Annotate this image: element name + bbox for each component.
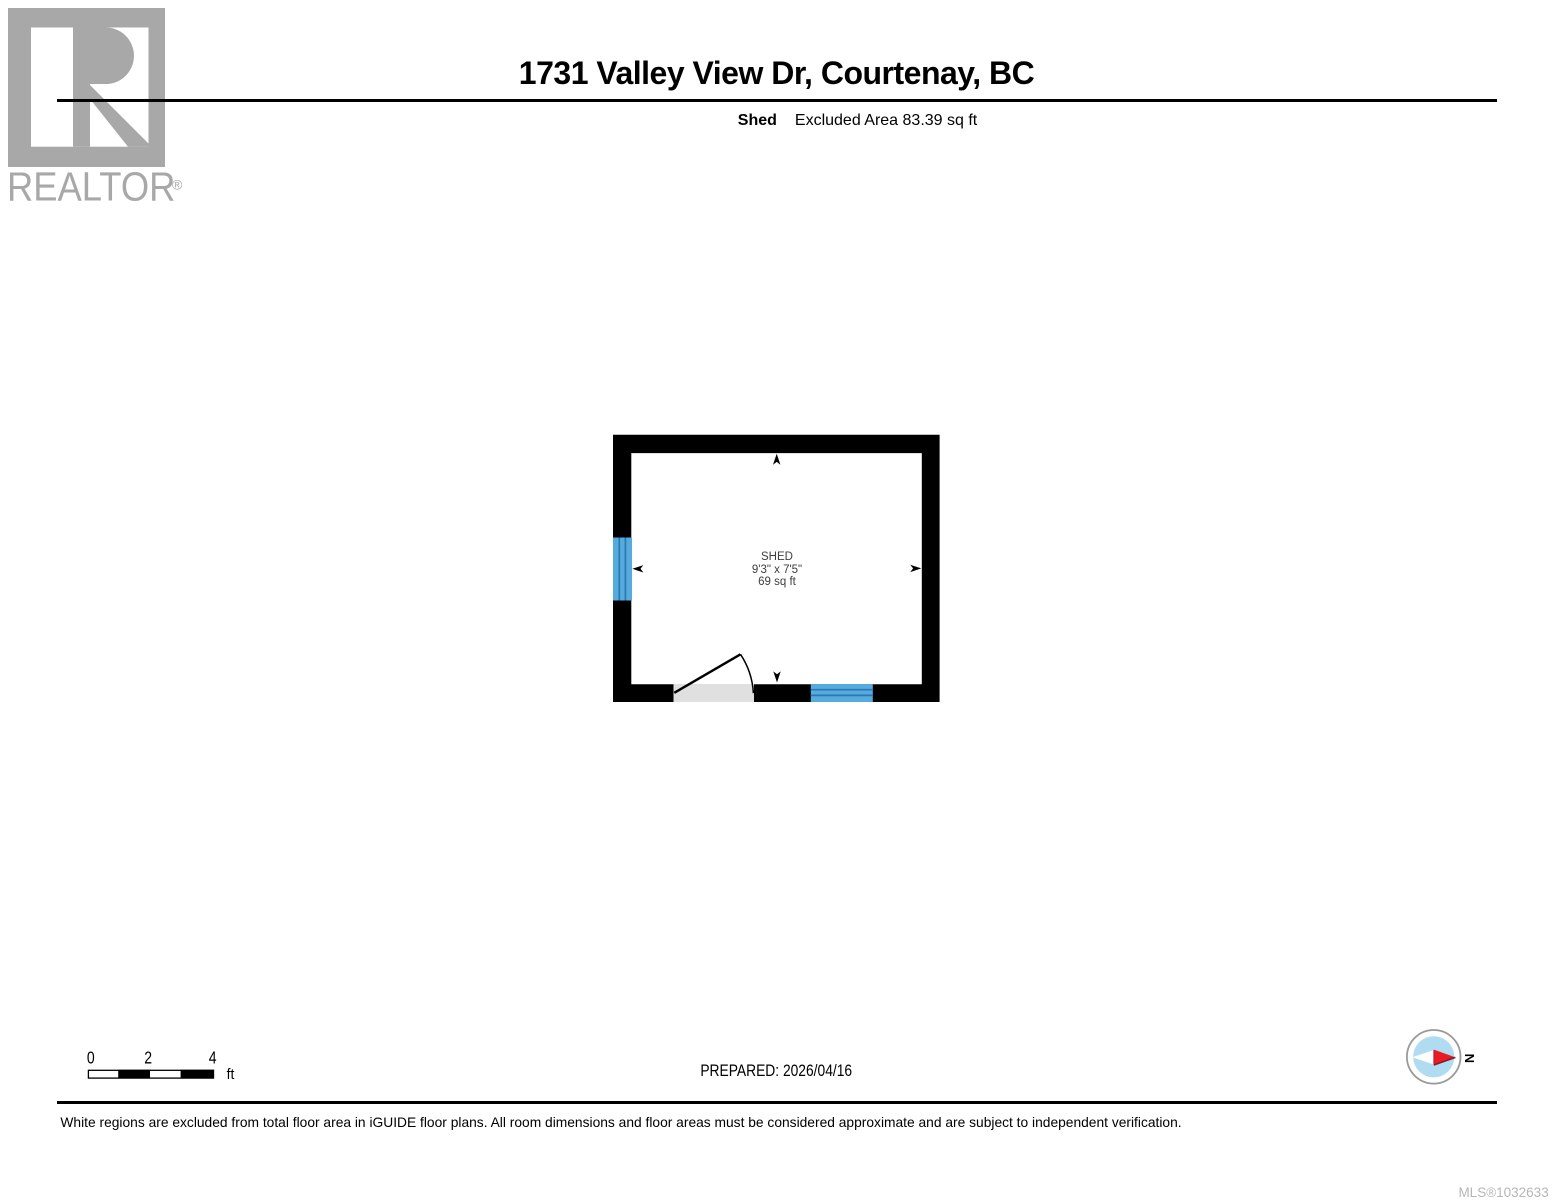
svg-text:N: N [1462,1054,1477,1063]
svg-text:9'3" x 7'5": 9'3" x 7'5" [752,564,802,576]
svg-text:69 sq ft: 69 sq ft [758,576,797,588]
svg-text:SHED: SHED [761,551,793,563]
